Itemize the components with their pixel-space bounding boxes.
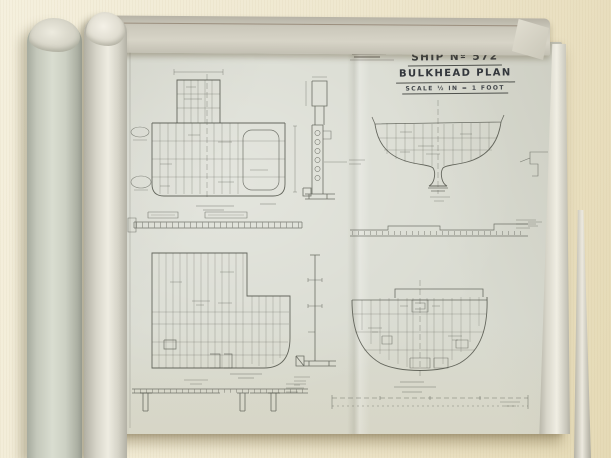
roll-end-cap [86, 12, 126, 46]
bulkhead-section-top-right [372, 100, 504, 201]
bulkhead-section-bottom-right [352, 280, 487, 392]
plan-title: BULKHEAD PLAN [396, 68, 515, 84]
scale-note: SCALE ½ IN = 1 FOOT [402, 84, 507, 95]
blueprint-sheet: SHIP Nº 572 BULKHEAD PLAN SCALE ½ IN = 1… [100, 42, 562, 434]
centre-girder-detail [303, 77, 365, 199]
stiffener-plan-strip-right [350, 220, 536, 236]
sheet-drawing [100, 42, 562, 434]
centre-stiffener-detail [294, 255, 336, 385]
bulkhead-section-bottom-left [152, 253, 290, 378]
bracket-detail-right [520, 152, 548, 226]
bottom-plan-strip-left [132, 380, 308, 411]
roll-end-cap [29, 18, 80, 52]
photo-scene: SHIP Nº 572 BULKHEAD PLAN SCALE ½ IN = 1… [0, 0, 611, 458]
rolled-plan-left-outer [27, 20, 82, 458]
rolled-plan-left-inner [84, 14, 127, 458]
stiffener-plan-strip-left [128, 212, 302, 232]
folded-top-edge [103, 15, 550, 55]
approval-stamp [350, 54, 394, 60]
border-rule-line [112, 23, 541, 27]
bottom-plan-strip-right [332, 395, 528, 409]
bulkhead-section-top-left [131, 69, 297, 210]
title-block: SHIP Nº 572 BULKHEAD PLAN SCALE ½ IN = 1… [396, 50, 514, 94]
